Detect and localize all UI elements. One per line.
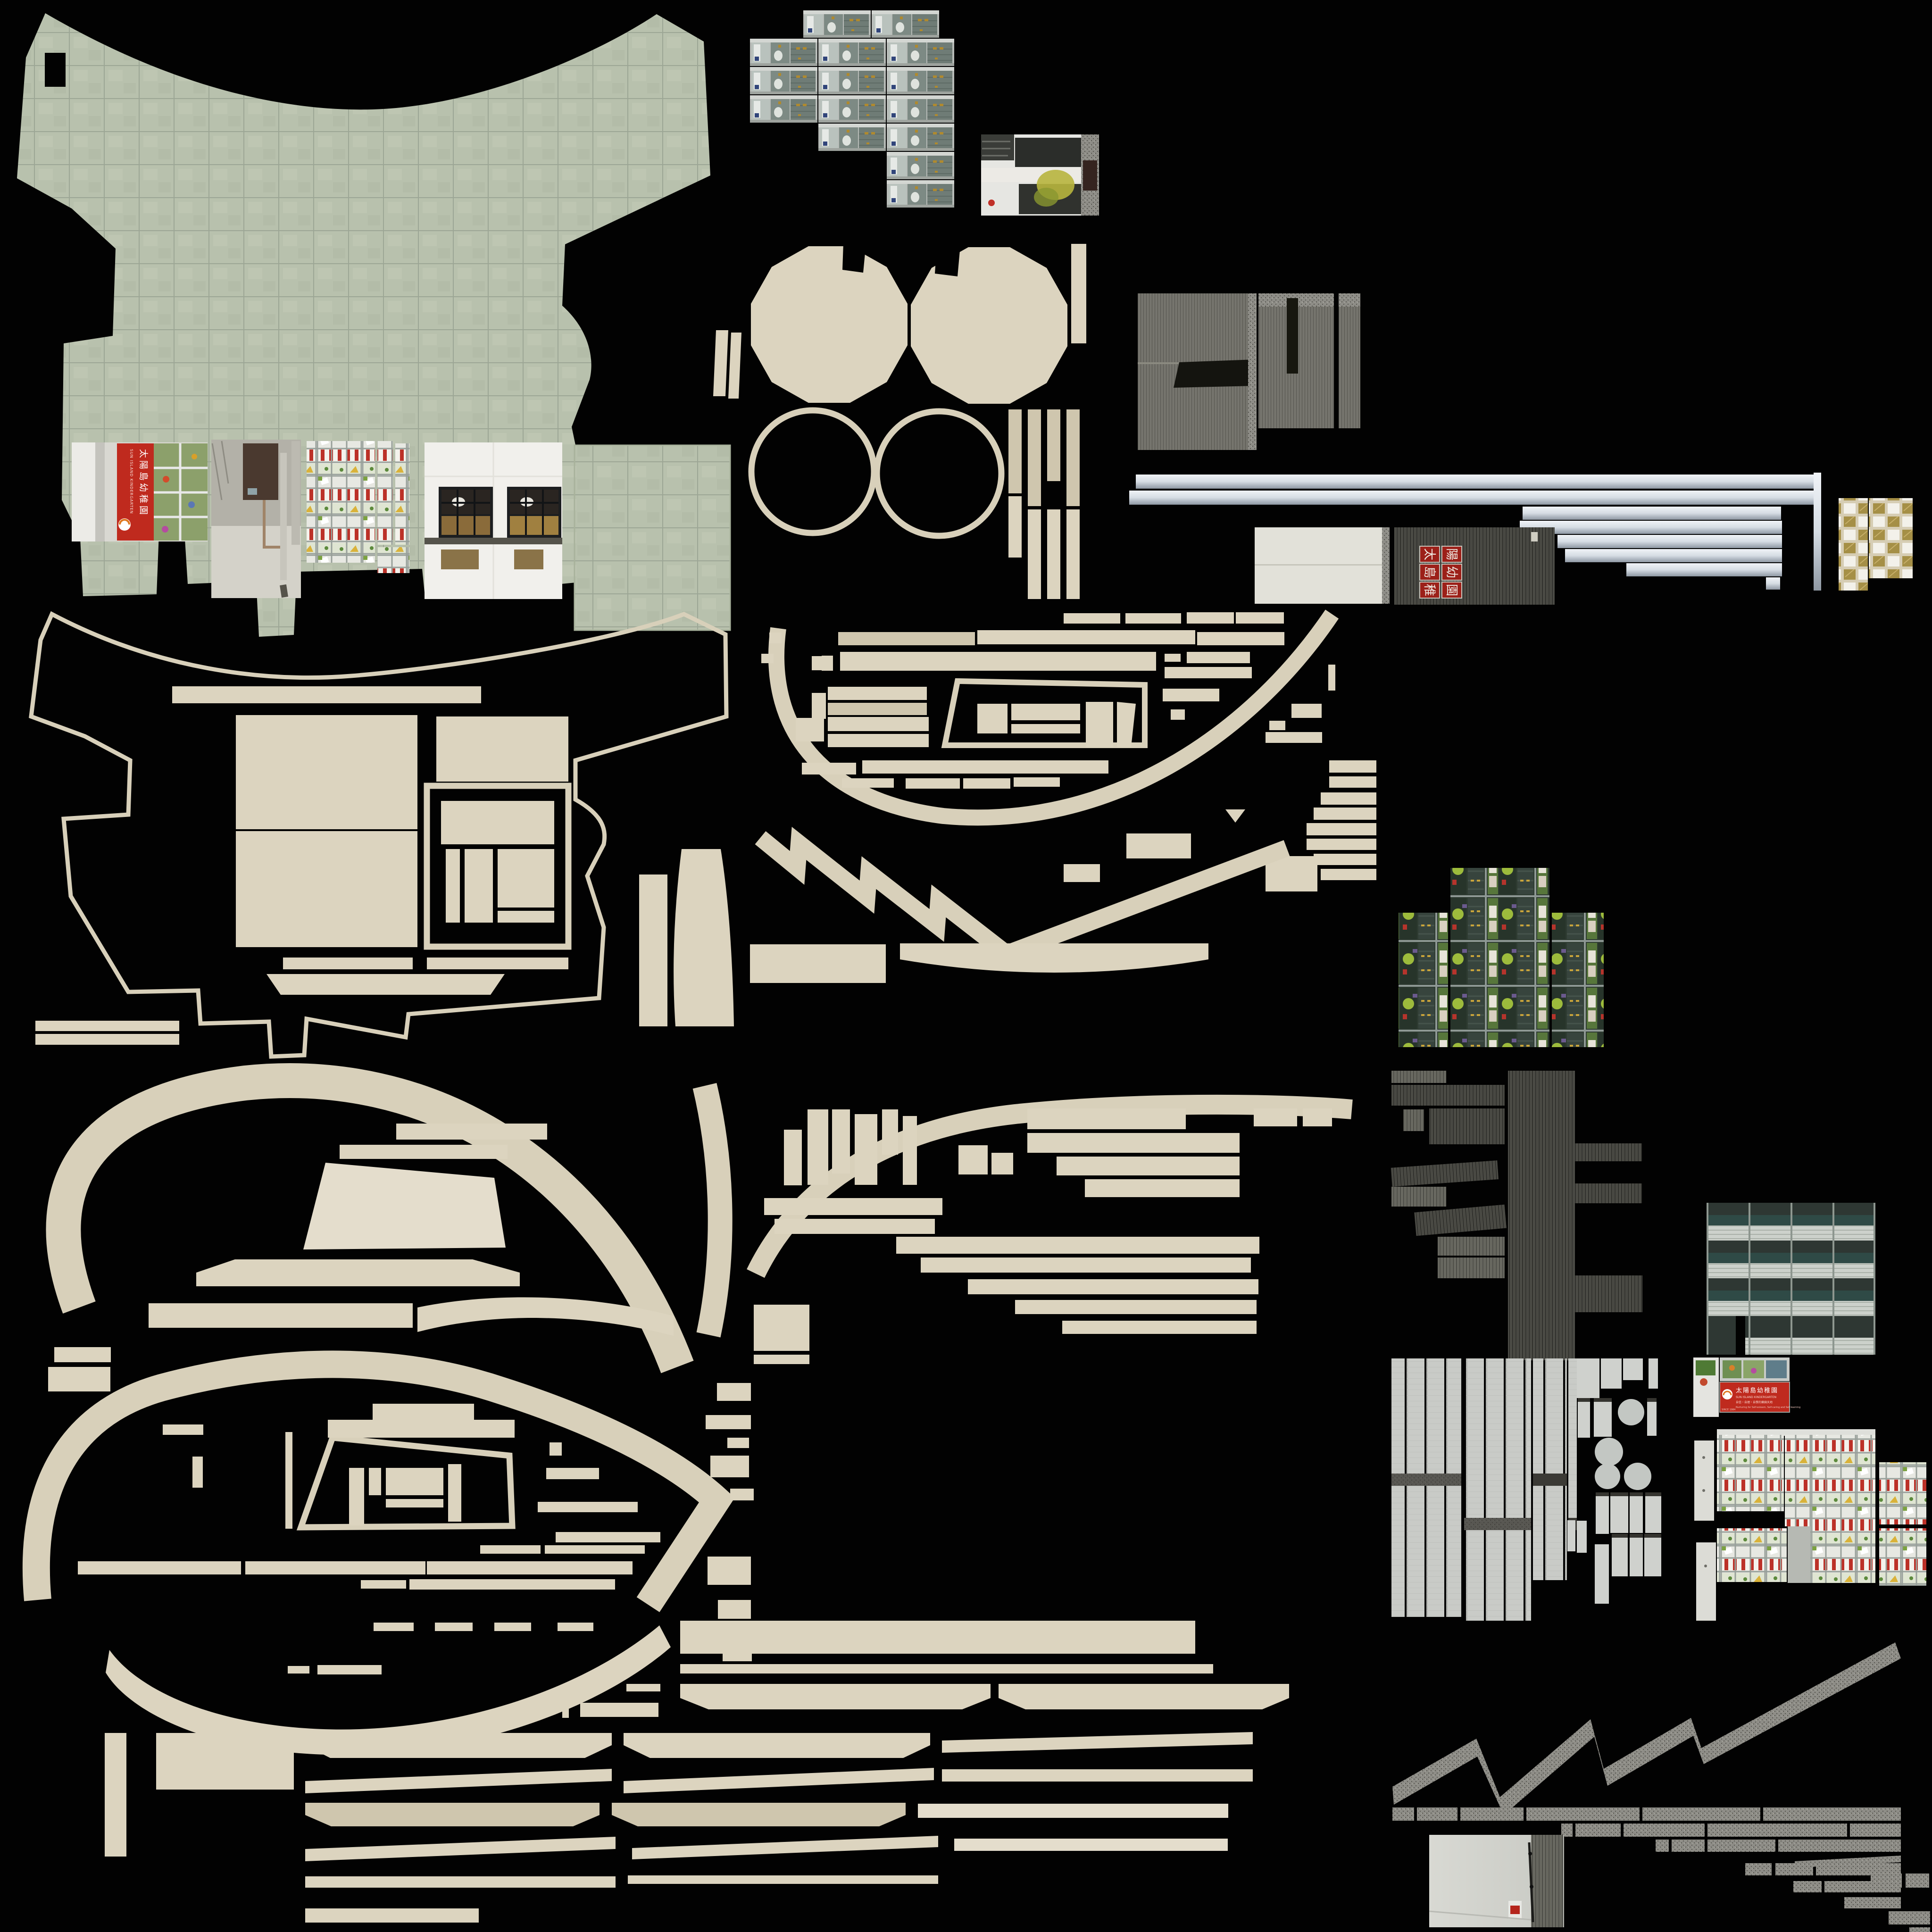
plank-wall	[1533, 1358, 1567, 1580]
round-column-cap	[1618, 1399, 1644, 1425]
round-red-sign	[988, 199, 995, 207]
red-sign-character: 園	[1444, 584, 1458, 596]
eye-platform	[196, 1259, 520, 1286]
window-decal	[163, 476, 169, 483]
mascot-grid	[1450, 913, 1549, 1047]
wall-lower	[211, 526, 301, 598]
beam-sliver	[1814, 473, 1821, 591]
dodecagon-right-notch	[935, 244, 960, 276]
banner-name-zh: 太陽島幼稚園	[1736, 1387, 1778, 1394]
trapezoid-strip	[999, 1684, 1289, 1709]
red-sign-character: 島	[1422, 566, 1436, 578]
banner-tagline-en: Nurturing for Self-esteem, Self-caring a…	[1736, 1406, 1800, 1409]
handrail-bracket	[1528, 1852, 1532, 1856]
striped-window-fragment	[1879, 1528, 1926, 1586]
shutter-patch	[1429, 1108, 1505, 1144]
kindergarten-photo: 太陽島幼稚園 SUN ISLAND KINDERGARTEN	[72, 442, 208, 541]
window-decal	[188, 501, 195, 508]
brown-panel	[441, 550, 479, 569]
window-cell-grid-left	[1839, 498, 1868, 591]
striped-window-patch	[1785, 1435, 1875, 1526]
banner-tagline-zh: 自信・自理・自學的樂園天地	[1736, 1400, 1773, 1404]
classroom-window-photo	[307, 441, 375, 563]
plank-wall	[1391, 1358, 1461, 1617]
hull-bottom-rect	[750, 944, 886, 983]
beam	[1136, 475, 1816, 489]
beam	[1626, 563, 1782, 576]
shop-window-tile	[887, 124, 954, 151]
shop-window-tile	[887, 67, 954, 94]
trapezoid-strip	[680, 1684, 991, 1709]
funnel	[283, 585, 285, 597]
brown-panel	[514, 550, 543, 569]
dodecagon-right	[911, 247, 1067, 404]
mascot-grid	[1450, 868, 1549, 913]
floor-sheet-notch	[45, 53, 66, 87]
red-sign-character: 稚	[1422, 584, 1436, 596]
shutter-branch	[1575, 1143, 1642, 1161]
shop-window-tile	[750, 67, 817, 94]
flat-strip	[954, 1839, 1228, 1851]
mascot-grid	[1399, 913, 1448, 1047]
floor-tile-square	[575, 445, 730, 630]
beam	[1523, 507, 1781, 520]
gravel-edge	[1248, 293, 1257, 450]
plank-wall-narrow	[1568, 1358, 1577, 1519]
red-sign-character: 太	[1422, 548, 1436, 560]
pillar-face	[105, 442, 117, 541]
flat-strip	[942, 1769, 1253, 1782]
window-cell-grids	[1839, 498, 1913, 591]
shutter-patch	[1438, 1257, 1505, 1278]
shop-window-tile	[818, 67, 886, 94]
window-fragment	[395, 443, 409, 545]
gray-pillar	[1788, 1526, 1810, 1583]
pipe	[280, 453, 287, 580]
canteen-window	[507, 487, 561, 538]
glass-facade	[1707, 1203, 1875, 1355]
dark-slot	[1287, 298, 1298, 374]
panel-edge	[1382, 527, 1390, 604]
dodecagon-left	[751, 246, 908, 403]
dark-recess-slab	[1174, 359, 1256, 388]
sign-banner: 太陽島幼稚園 SUN ISLAND KINDERGARTEN 自信・自理・自學的…	[1720, 1382, 1800, 1412]
eye-bar	[340, 1145, 508, 1159]
utility-wall-photo	[211, 440, 301, 598]
window-lower	[510, 516, 558, 535]
glass-upper	[1745, 1316, 1875, 1338]
shutter-patch	[1391, 1085, 1505, 1106]
dark-planter	[1083, 160, 1097, 191]
banner-since: SINCE 1984	[1722, 1408, 1735, 1411]
panel-seam	[1255, 564, 1390, 566]
canteen-window	[439, 487, 493, 538]
beam-tab	[1766, 577, 1780, 590]
shutter-patch	[1403, 1109, 1424, 1131]
pole-screw	[1702, 1489, 1705, 1492]
shop-window-tile	[750, 39, 817, 66]
shutter-patch	[1391, 1187, 1446, 1207]
shutter-patch	[1438, 1237, 1505, 1256]
beam	[1520, 521, 1782, 534]
canteen-wall-photo	[425, 442, 562, 599]
beam	[1557, 535, 1782, 548]
shop-window-tile	[803, 10, 871, 38]
red-sign-wall	[1394, 527, 1555, 605]
pipe	[291, 441, 300, 545]
eye-long-bar	[149, 1303, 413, 1328]
handrail-bracket	[1530, 1885, 1533, 1889]
column-bar	[1071, 244, 1086, 343]
plank-band	[1533, 1474, 1567, 1486]
red-sign-character: 陽	[1444, 548, 1458, 560]
plank-band-texture	[1464, 1518, 1531, 1530]
window-fragment	[377, 547, 409, 573]
plank-band-texture	[1391, 1474, 1461, 1486]
shop-window-tile	[887, 39, 954, 66]
round-column-cap	[1595, 1438, 1623, 1466]
round-column-cap	[1595, 1464, 1620, 1489]
pole-screw	[1702, 1456, 1705, 1459]
glass-fragment	[1707, 1316, 1736, 1355]
dark-glass-upper	[1015, 138, 1081, 167]
shop-window-tile	[872, 10, 939, 38]
window-decal	[162, 526, 168, 533]
shutter-patch	[1391, 1071, 1446, 1083]
beam	[1565, 549, 1782, 562]
texture-atlas-sheet: 太 陽 島 幼 稚 園 太陽島幼稚園 SUN ISLAND KINDERGART…	[0, 0, 1932, 1932]
shop-window-tile	[818, 39, 886, 66]
platform-trapezoid	[266, 974, 505, 995]
shop-window-tile	[750, 95, 817, 123]
signage-wall-photos: 太 陽 島 幼 稚 園	[1255, 527, 1555, 605]
striped-window-patch	[1717, 1435, 1784, 1511]
box-label	[248, 488, 257, 495]
shop-window-tile	[818, 95, 886, 123]
dark-band	[425, 538, 562, 544]
striped-window-fragment	[1879, 1462, 1926, 1524]
window-art-dot	[1700, 1378, 1707, 1386]
kindergarten-name-zh-vertical: 太陽島幼稚園	[138, 449, 149, 517]
striped-window-patch	[1717, 1528, 1787, 1582]
corridor-photo	[1429, 1835, 1564, 1927]
round-column-cap	[1624, 1463, 1651, 1490]
kindergarten-name-en-vertical: SUN ISLAND KINDERGARTEN	[129, 449, 133, 514]
window-fragment	[377, 441, 393, 545]
gravel-top-slim	[1339, 293, 1360, 307]
window-decal	[192, 454, 197, 459]
entrance-interior	[981, 134, 1014, 160]
window-decal	[1751, 1368, 1757, 1374]
striped-windows	[307, 441, 375, 563]
flat-strip	[918, 1804, 1228, 1818]
wall-band	[1717, 1429, 1875, 1436]
shutter-column	[1508, 1071, 1575, 1360]
wall-tag	[1531, 532, 1538, 541]
pillar-shadow	[95, 442, 105, 541]
shop-window-tile	[887, 95, 954, 123]
concrete-band	[1745, 1338, 1875, 1355]
eye-bar	[396, 1124, 547, 1140]
flower-foliage	[1034, 188, 1058, 207]
shop-window-tile	[887, 152, 954, 179]
window-pane	[1766, 1360, 1787, 1378]
beam	[1129, 491, 1816, 505]
trapezoid-strip	[624, 1733, 930, 1758]
trapezoid-strip	[305, 1733, 612, 1758]
entrance-photo	[981, 134, 1099, 216]
window-cell-grid-right	[1869, 498, 1913, 578]
window-lower	[441, 516, 490, 535]
trapezoid-strip-dark	[305, 1803, 600, 1826]
window-art	[1696, 1360, 1715, 1375]
trapezoid-strip-dark	[612, 1803, 906, 1826]
plank-wall	[1464, 1358, 1531, 1621]
pole-screw	[1704, 1565, 1707, 1567]
fire-sign-red	[1510, 1906, 1520, 1914]
shutter-branch	[1575, 1183, 1642, 1203]
banner-name-en: SUN ISLAND KINDERGARTEN	[1736, 1396, 1776, 1399]
shop-window-tile	[818, 124, 886, 151]
white-pole	[1696, 1542, 1716, 1621]
mascot-grid	[1552, 913, 1604, 1047]
white-pole	[1694, 1441, 1714, 1521]
shop-window-tile	[887, 180, 954, 208]
white-pillar	[72, 442, 95, 541]
window-decal	[1729, 1365, 1735, 1371]
red-sign-character: 幼	[1444, 566, 1458, 578]
concrete-block-slim	[1339, 293, 1360, 428]
concrete-blocks	[1138, 293, 1360, 450]
dodecagon-left-notch	[842, 243, 866, 273]
corridor-dark-column	[1531, 1835, 1563, 1927]
